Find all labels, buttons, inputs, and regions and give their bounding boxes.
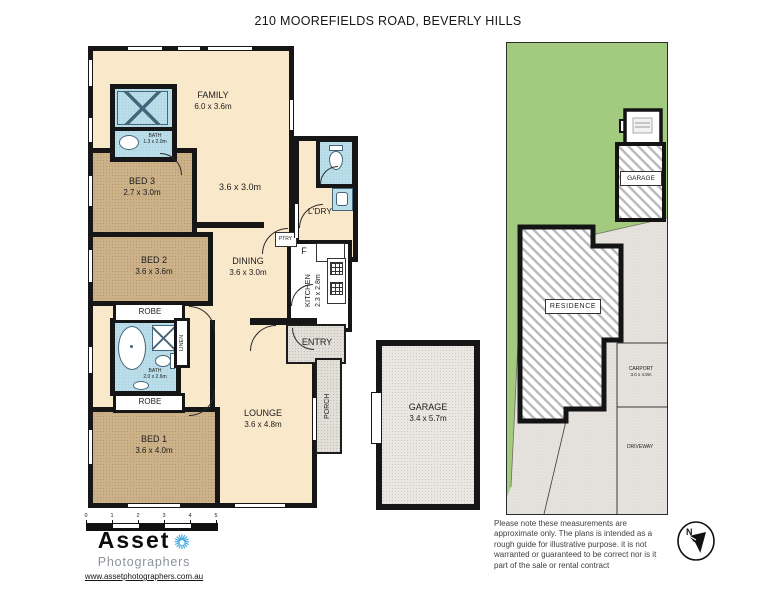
- label-entry: ENTRY: [294, 337, 340, 348]
- scale-tick-label: 0: [82, 513, 90, 519]
- room-bath-top: BATH 1.3 x 2.0m: [110, 84, 177, 162]
- shed-detail: [633, 118, 652, 133]
- scale-tick-label: 4: [186, 513, 194, 519]
- label-lounge: LOUNGE 3.6 x 4.8m: [230, 408, 296, 430]
- site-driveway-label: DRIVEWAY: [617, 444, 663, 450]
- room-bed1: [88, 407, 220, 508]
- floorplan-page: 210 MOOREFIELDS ROAD, BEVERLY HILLS BATH…: [0, 0, 776, 600]
- scale-tick-label: 2: [134, 513, 142, 519]
- bathtub-icon: [118, 326, 146, 370]
- label-kitchen-name: KITCHEN: [302, 262, 313, 320]
- wall-stub: [192, 222, 264, 228]
- label-robe1: ROBE: [120, 306, 180, 317]
- label-bed2: BED 2 3.6 x 3.6m: [116, 255, 192, 277]
- gear-icon: ✺: [173, 531, 190, 555]
- label-laundry: L'DRY: [298, 206, 342, 217]
- stove-icon: [330, 262, 343, 275]
- scale-tick-label: 1: [108, 513, 116, 519]
- basin-icon: [119, 135, 139, 150]
- label-bed3: BED 3 2.7 x 3.0m: [108, 176, 176, 198]
- toilet-icon: [155, 355, 171, 367]
- label-bed1: BED 1 3.6 x 4.0m: [116, 434, 192, 456]
- brand-logo: Asset✺ Photographers www.assetphotograph…: [76, 528, 212, 581]
- site-garage-label: GARAGE: [620, 171, 662, 186]
- disclaimer-text: Please note these measurements are appro…: [494, 519, 664, 571]
- room-bath-main: BATH 2.0 x 2.6m: [110, 318, 181, 396]
- bath-main-label: BATH 2.0 x 2.6m: [137, 369, 173, 380]
- shower-icon: [117, 91, 168, 125]
- label-garage-plan: GARAGE 3.4 x 5.7m: [393, 402, 463, 424]
- sink-icon: [133, 381, 149, 390]
- site-residence: [520, 227, 621, 421]
- garage-door-icon: [371, 392, 382, 444]
- label-linen: LINEN: [177, 324, 188, 362]
- wall-stub: [250, 318, 290, 325]
- north-arrow-icon: N: [676, 520, 716, 562]
- label-robe2: ROBE: [120, 396, 180, 407]
- label-family: FAMILY 6.0 x 3.6m: [180, 90, 246, 112]
- bath-top-label: BATH 1.3 x 2.0m: [140, 134, 170, 145]
- scale-tick-label: 5: [212, 513, 220, 519]
- fridge-label: F: [296, 246, 312, 257]
- brand-name: Asset✺: [76, 528, 212, 555]
- label-porch: PORCH: [322, 378, 333, 434]
- brand-url-link[interactable]: www.assetphotographers.com.au: [76, 572, 212, 581]
- label-kitchen-dims: 2.3 x 2.8m: [313, 262, 324, 320]
- site-carport-label: CARPORT 3.0 x 4.9m: [617, 366, 665, 378]
- label-dining: DINING 3.6 x 3.0m: [214, 256, 282, 278]
- oven-icon: [330, 282, 343, 295]
- label-living2: 3.6 x 3.0m: [208, 182, 272, 193]
- scale-tick-label: 3: [160, 513, 168, 519]
- page-title: 210 MOOREFIELDS ROAD, BEVERLY HILLS: [0, 14, 776, 28]
- shower-icon: [152, 325, 175, 351]
- site-residence-label: RESIDENCE: [545, 299, 601, 314]
- brand-tagline: Photographers: [76, 555, 212, 569]
- room-garage-plan: [376, 340, 480, 510]
